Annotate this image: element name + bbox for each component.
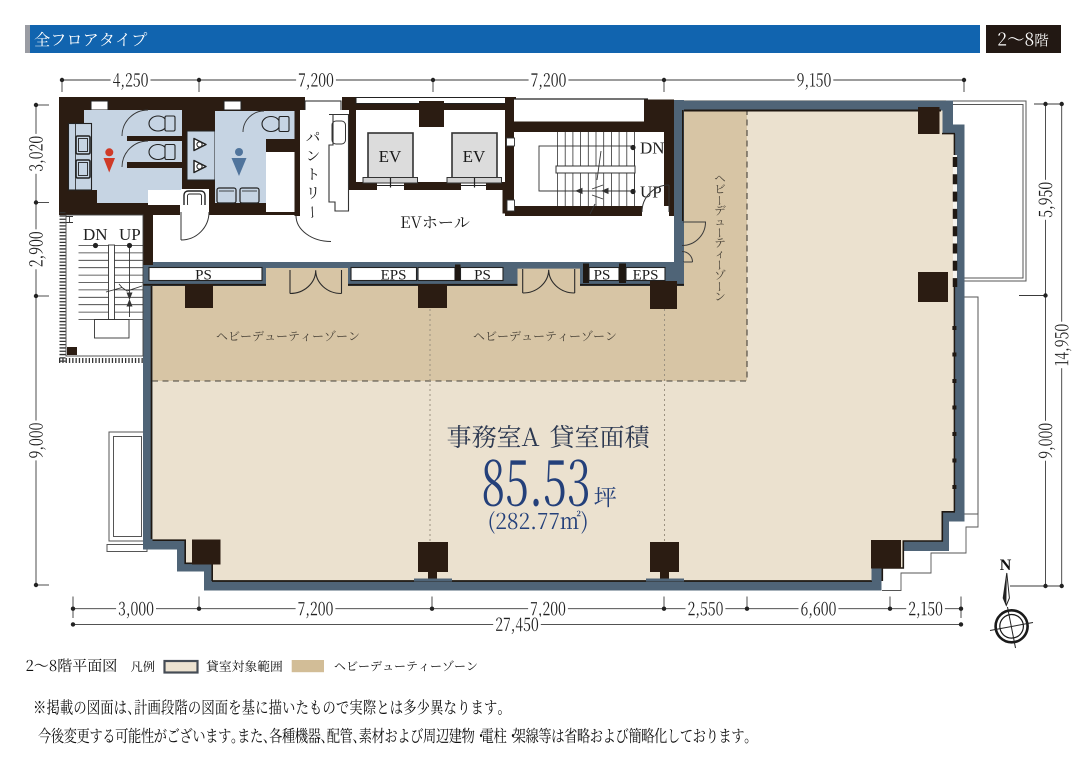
svg-text:EV: EV (463, 147, 486, 166)
svg-text:EV: EV (379, 147, 402, 166)
svg-text:DN: DN (640, 139, 665, 158)
svg-text:UP: UP (119, 225, 141, 244)
svg-text:PS: PS (474, 268, 491, 284)
svg-text:PS: PS (195, 268, 212, 284)
svg-text:PS: PS (594, 268, 611, 284)
svg-text:EPS: EPS (381, 268, 407, 284)
svg-text:DN: DN (83, 225, 108, 244)
svg-text:N: N (1000, 557, 1012, 574)
